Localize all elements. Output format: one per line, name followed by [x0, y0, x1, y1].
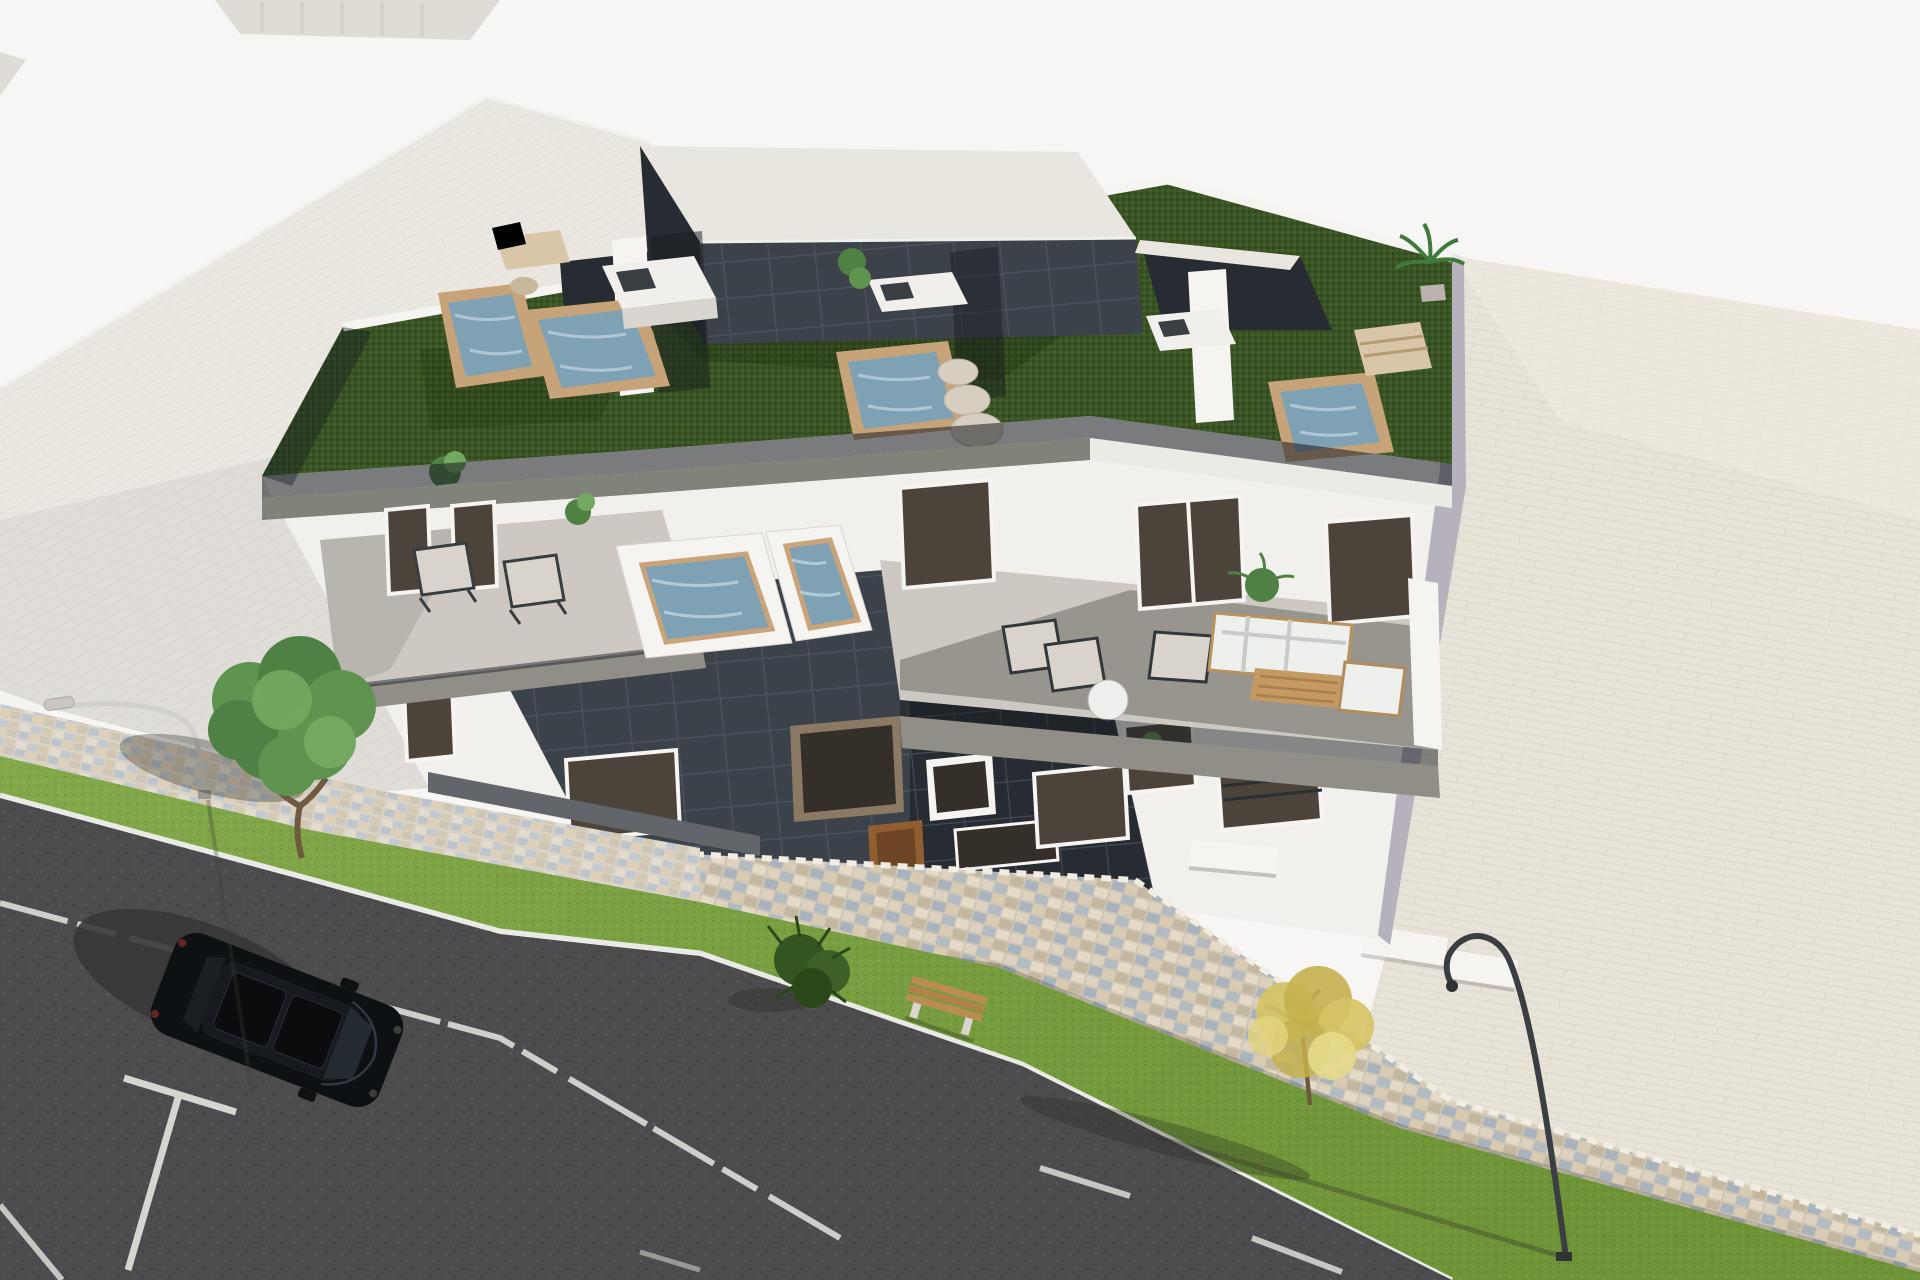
right-terrace	[880, 480, 1442, 798]
pool-3-water	[848, 352, 954, 429]
lounge-chair-dark	[1149, 632, 1212, 682]
terrace-door-5	[1326, 515, 1416, 624]
terrace-door-3	[900, 480, 994, 588]
far-building-roof	[215, 0, 500, 40]
kitchen-3-top	[1146, 309, 1236, 351]
wood-stool	[510, 277, 538, 295]
tile-opening-glass	[800, 725, 896, 813]
render-canvas	[0, 0, 1920, 1280]
lounger-dark-2	[504, 555, 564, 607]
roof-palm-pot	[1420, 284, 1446, 302]
stone-stool-1	[938, 359, 978, 385]
gf-window-3	[1034, 765, 1128, 847]
roof-plant-2b	[849, 267, 871, 289]
tile-window-glass	[933, 761, 989, 813]
pool-4-water	[1280, 383, 1380, 452]
stone-stool-2	[944, 385, 990, 415]
kitchen-2-sink	[880, 282, 914, 301]
penthouse-deck	[640, 146, 1136, 242]
terrace-plant-1b	[577, 493, 595, 511]
lamp-right-base	[1556, 1252, 1572, 1261]
lounge-lounger-2	[1045, 638, 1105, 691]
lounge-armchair-round	[1088, 680, 1128, 720]
lounger-dark-1	[414, 543, 474, 595]
lounge-armchair-2	[1339, 662, 1405, 716]
lamp-right-head	[1446, 980, 1458, 992]
aerial-render	[0, 0, 1920, 1280]
terrace-pool-1	[642, 554, 772, 642]
